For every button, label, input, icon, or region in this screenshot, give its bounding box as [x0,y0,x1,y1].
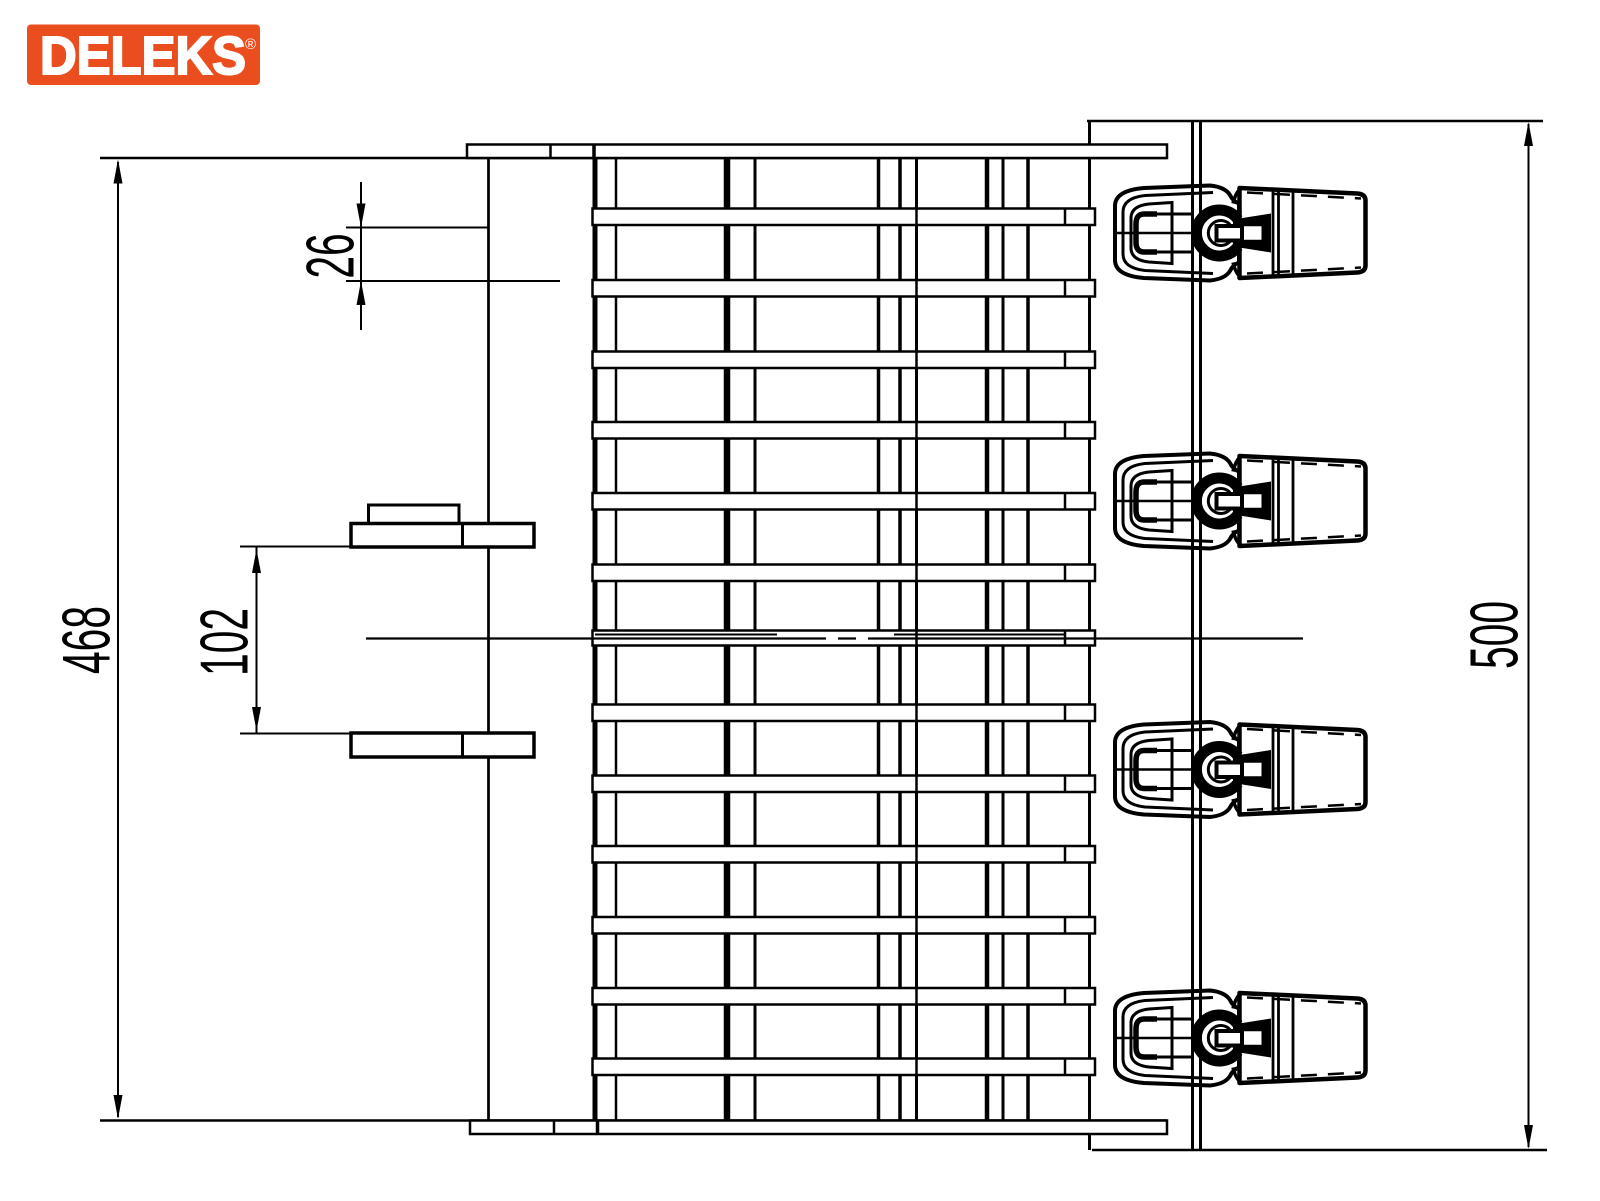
svg-text:26: 26 [292,233,368,278]
svg-text:500: 500 [1456,601,1532,669]
svg-text:®: ® [245,36,256,53]
svg-text:102: 102 [186,608,262,676]
svg-text:DELEKS: DELEKS [40,26,246,86]
svg-text:468: 468 [48,606,124,674]
